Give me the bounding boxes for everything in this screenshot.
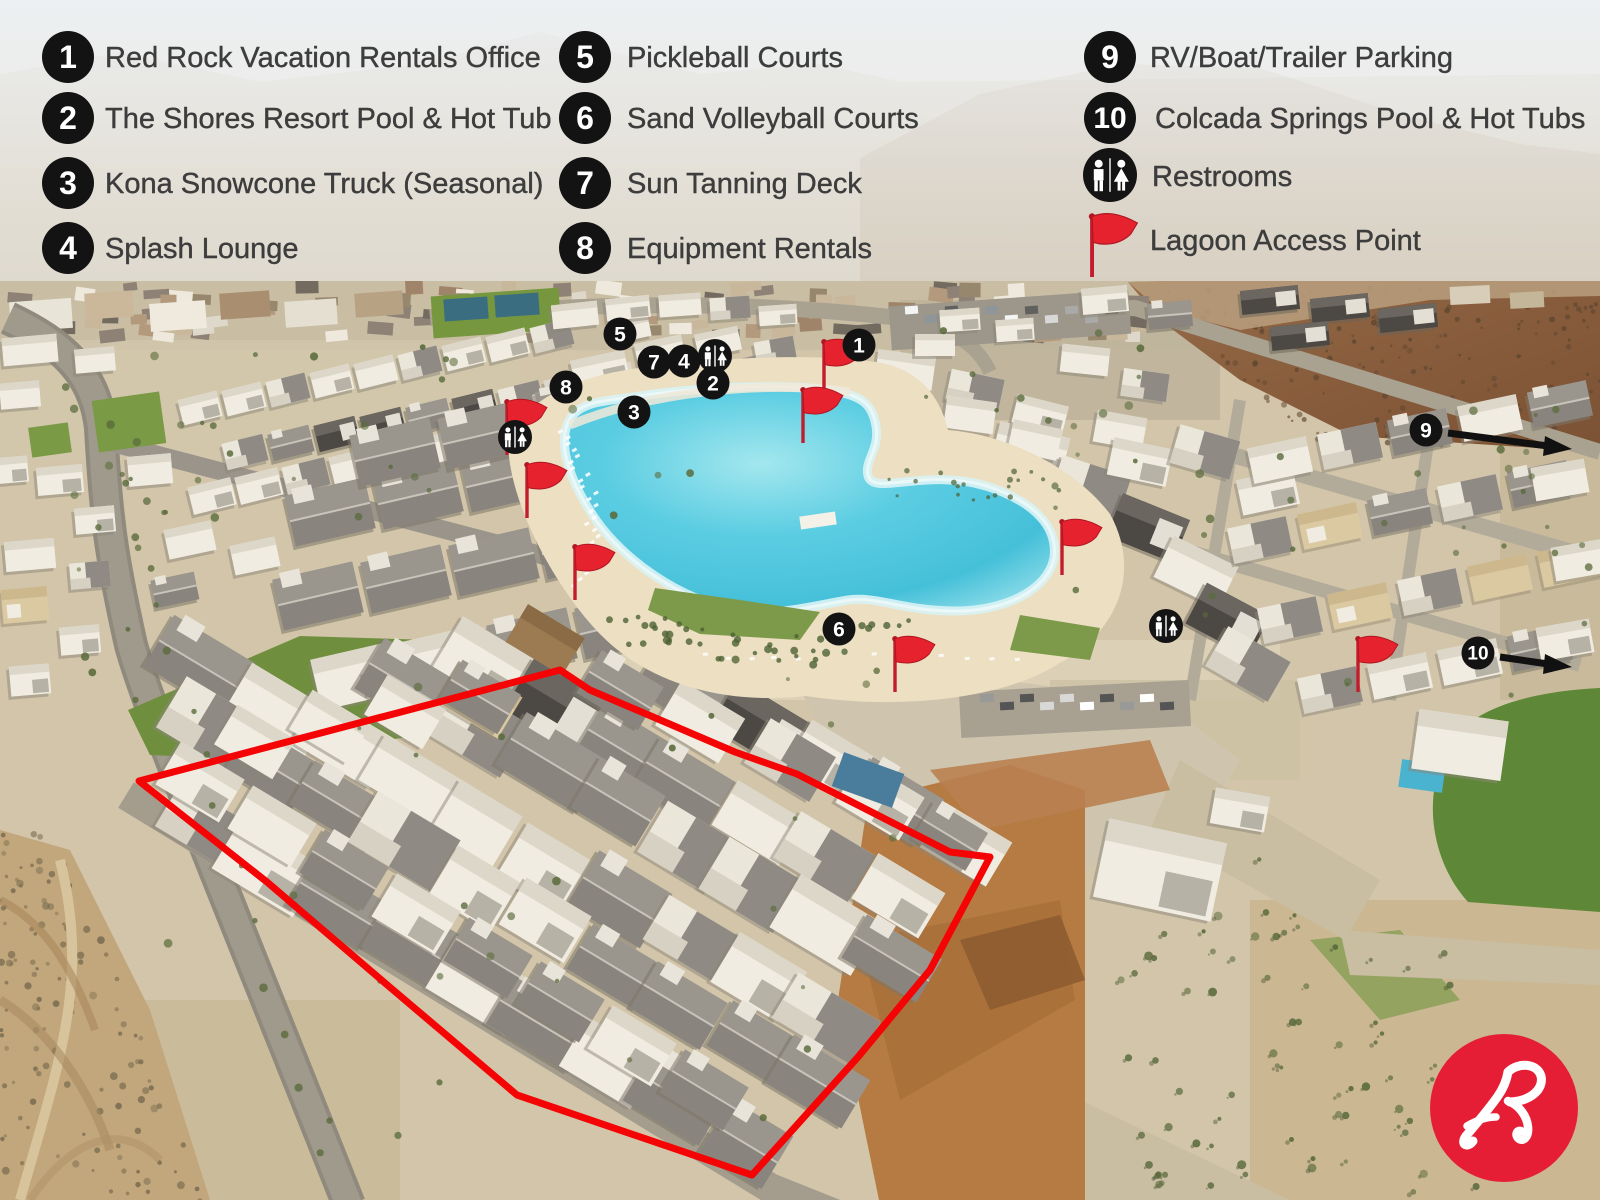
- svg-text:Kona Snowcone Truck (Seasonal): Kona Snowcone Truck (Seasonal): [105, 168, 543, 200]
- svg-text:3: 3: [59, 165, 77, 201]
- svg-text:4: 4: [678, 350, 690, 373]
- svg-text:Splash Lounge: Splash Lounge: [105, 233, 299, 265]
- svg-text:2: 2: [59, 100, 77, 136]
- svg-text:Pickleball Courts: Pickleball Courts: [627, 42, 843, 74]
- svg-text:6: 6: [833, 618, 845, 641]
- svg-text:8: 8: [560, 376, 572, 399]
- svg-text:Equipment Rentals: Equipment Rentals: [627, 233, 872, 265]
- svg-text:Colcada Springs Pool & Hot Tub: Colcada Springs Pool & Hot Tubs: [1155, 103, 1585, 135]
- svg-text:3: 3: [628, 401, 640, 424]
- svg-text:Lagoon Access Point: Lagoon Access Point: [1150, 225, 1421, 257]
- svg-text:1: 1: [853, 334, 865, 357]
- svg-text:The Shores Resort Pool & Hot T: The Shores Resort Pool & Hot Tub: [105, 103, 552, 135]
- svg-text:Red Rock Vacation Rentals Offi: Red Rock Vacation Rentals Office: [105, 42, 541, 74]
- svg-text:8: 8: [576, 230, 594, 266]
- svg-text:6: 6: [576, 100, 594, 136]
- svg-text:Restrooms: Restrooms: [1152, 161, 1292, 193]
- svg-text:Sun Tanning Deck: Sun Tanning Deck: [627, 168, 862, 200]
- svg-text:1: 1: [59, 39, 77, 75]
- svg-text:7: 7: [576, 165, 594, 201]
- svg-text:9: 9: [1101, 39, 1119, 75]
- svg-text:9: 9: [1420, 419, 1432, 442]
- svg-text:5: 5: [614, 323, 626, 346]
- svg-text:RV/Boat/Trailer Parking: RV/Boat/Trailer Parking: [1150, 42, 1453, 74]
- svg-text:7: 7: [648, 351, 660, 374]
- svg-text:5: 5: [576, 39, 594, 75]
- svg-text:10: 10: [1467, 644, 1488, 665]
- svg-text:2: 2: [707, 372, 719, 395]
- svg-text:4: 4: [59, 230, 77, 266]
- svg-text:Sand Volleyball Courts: Sand Volleyball Courts: [627, 103, 919, 135]
- svg-text:10: 10: [1093, 102, 1126, 135]
